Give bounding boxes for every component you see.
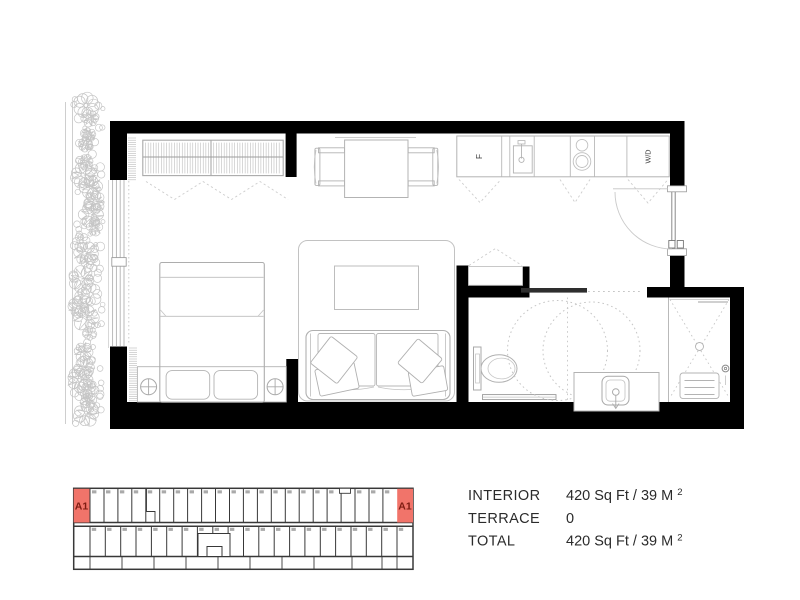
svg-text:INTERIOR: INTERIOR (468, 488, 540, 504)
svg-text:A1: A1 (398, 501, 412, 513)
svg-text:A1: A1 (75, 501, 89, 513)
svg-text:TERRACE: TERRACE (468, 511, 540, 527)
svg-text:420 Sq Ft / 39 M 2: 420 Sq Ft / 39 M 2 (566, 487, 683, 504)
svg-text:W/D: W/D (644, 150, 653, 164)
svg-text:F: F (475, 154, 484, 159)
svg-text:420 Sq Ft / 39 M 2: 420 Sq Ft / 39 M 2 (566, 533, 683, 550)
svg-text:TOTAL: TOTAL (468, 534, 515, 550)
svg-text:0: 0 (566, 511, 574, 527)
